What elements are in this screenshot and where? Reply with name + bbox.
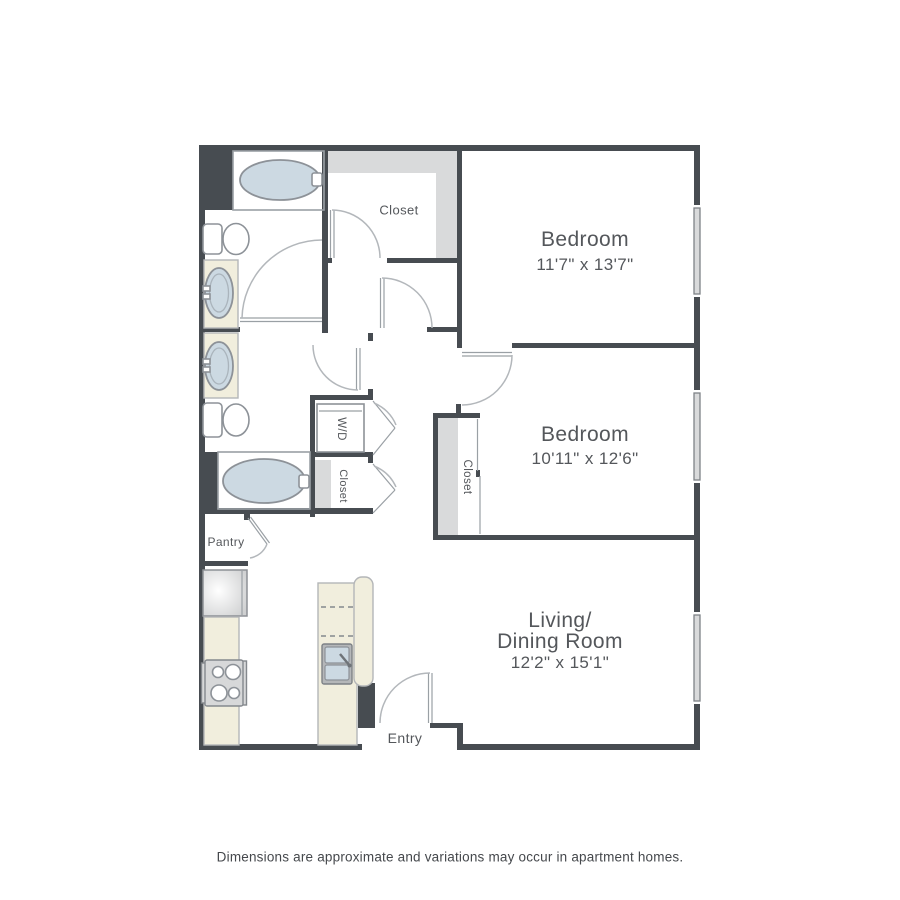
living-room-dims: 12'2" x 15'1" (511, 653, 609, 673)
disclaimer-text: Dimensions are approximate and variation… (217, 850, 684, 865)
bathtub-icon (218, 452, 310, 509)
vanity-sink-icon (203, 260, 238, 328)
living-room-name-line2: Dining Room (497, 630, 623, 654)
floorplan-drawing (0, 0, 900, 900)
door-wd-bifold (373, 401, 396, 513)
hall-closet-label: Closet (337, 469, 349, 503)
kitchen-sink-icon (322, 644, 352, 684)
door-walkin-closet (331, 210, 381, 258)
bathtub-icon (233, 151, 324, 210)
door-bedroom1 (381, 278, 433, 328)
toilet-icon (203, 403, 249, 437)
toilet-icon (203, 224, 249, 255)
entry-label: Entry (388, 730, 423, 746)
bedroom2-name: Bedroom (541, 423, 629, 447)
stove-icon (202, 660, 247, 706)
door-bath1 (240, 240, 322, 322)
fridge-icon (203, 570, 247, 616)
walkin-closet-label: Closet (379, 203, 418, 218)
door-pantry-bifold (248, 517, 270, 558)
window-bedroom1 (692, 205, 702, 297)
bedroom2-dims: 10'11" x 12'6" (531, 449, 638, 469)
bedroom2-closet-label: Closet (461, 460, 473, 495)
bedroom1-name: Bedroom (541, 228, 629, 252)
door-bedroom2 (462, 353, 512, 406)
bedroom1-dims: 11'7" x 13'7" (536, 255, 633, 275)
window-bedroom2 (692, 390, 702, 483)
washer-dryer-label: W/D (335, 417, 347, 441)
window-living (692, 612, 702, 704)
vanity-sink-icon (203, 333, 238, 398)
pantry-label: Pantry (207, 535, 244, 549)
floorplan-canvas: Closet Bedroom 11'7" x 13'7" Bedroom 10'… (0, 0, 900, 900)
door-bath2 (313, 345, 360, 390)
door-entry (380, 673, 432, 723)
